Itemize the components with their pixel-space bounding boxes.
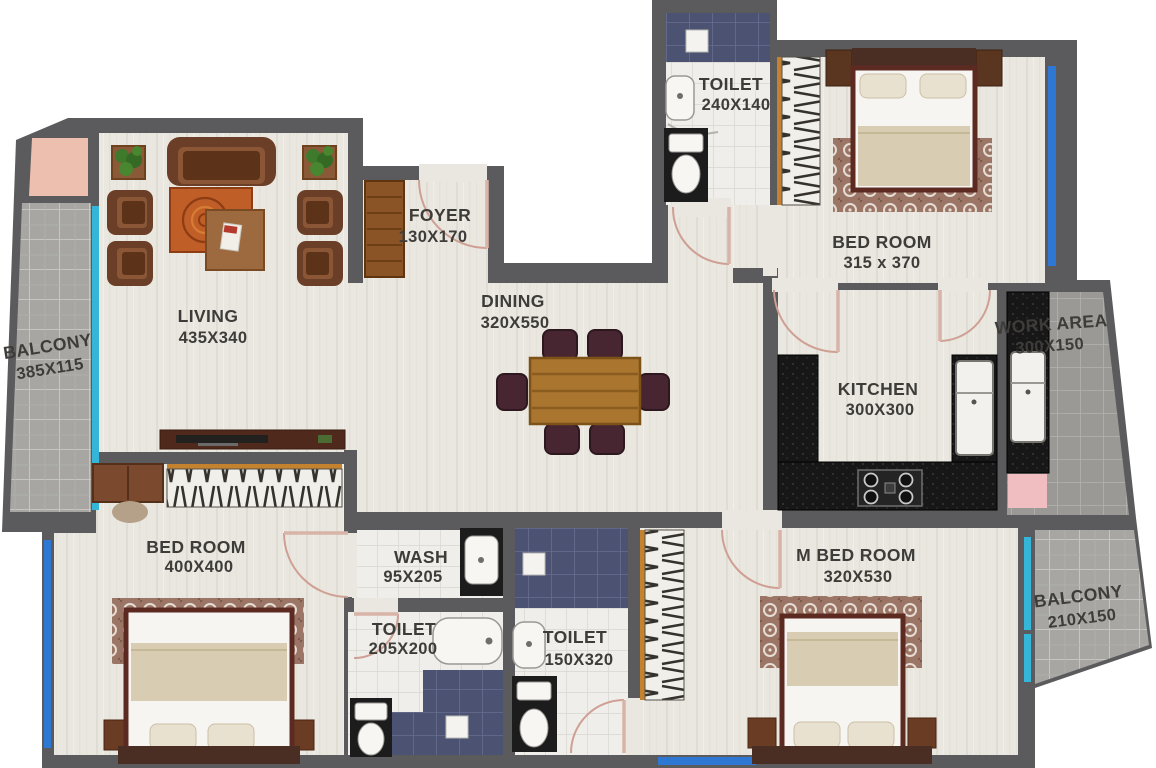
armchair-icon (297, 190, 343, 235)
wall-bedroom-left-east (344, 450, 357, 536)
room-name: TOILET (543, 627, 607, 647)
room-dims: 320X530 (824, 568, 893, 586)
stool-icon (112, 501, 148, 523)
floor-plan-image: BALCONY 385X115 LIVING 435X340 FOYER 130… (0, 0, 1156, 768)
toilet-small-drain (446, 716, 468, 738)
toilet-mid-drain (523, 553, 545, 575)
toilet-top-drain (686, 30, 708, 52)
room-dims: 205X200 (369, 640, 438, 658)
room-dims: 150X320 (545, 651, 614, 669)
window-bedroom-left (44, 540, 51, 748)
opening-m-bedroom (722, 510, 782, 530)
room-name: KITCHEN (838, 379, 919, 399)
opening-kitchen-left (772, 278, 838, 292)
room-name: BED ROOM (146, 537, 245, 557)
label-toilet-small: TOILET 205X200 (369, 619, 438, 658)
armchair-icon (107, 241, 153, 286)
washer-icon (1011, 352, 1045, 442)
bed-icon (852, 48, 976, 190)
sofa-icon (167, 137, 276, 186)
stove-icon (858, 470, 922, 506)
wc-icon (350, 698, 392, 757)
fridge-icon (956, 361, 993, 455)
room-name: DINING (481, 291, 545, 311)
armchair-icon (107, 190, 153, 235)
bedroom-top-furniture (777, 48, 1002, 212)
window-balcony-right-1 (1024, 537, 1031, 630)
window-balcony-right-2 (1024, 634, 1031, 682)
nightstand-icon (826, 50, 852, 86)
opening-wash-toilet (354, 598, 398, 614)
wash-fixtures (460, 528, 503, 596)
room-dims: 130X170 (399, 228, 468, 246)
room-dims: 400X400 (165, 558, 234, 576)
coffee-table-icon (206, 210, 264, 270)
nightstand-icon (976, 50, 1002, 86)
opening-kitchen-right (938, 278, 988, 292)
wardrobe-icon (167, 464, 342, 507)
room-dims: 240X140 (702, 96, 771, 114)
room-name: WASH (394, 547, 448, 567)
nightstand-icon (748, 718, 776, 748)
plant-icon (303, 146, 336, 179)
work-area-pink-pad (1008, 474, 1047, 508)
label-wash: WASH 95X205 (383, 547, 448, 586)
room-dims: 300X300 (846, 401, 915, 419)
bath-basin-icon (433, 618, 502, 664)
opening-bedroom-left (344, 533, 357, 597)
tv-console-icon (160, 430, 345, 449)
nightstand-icon (908, 718, 936, 748)
room-name: TOILET (372, 619, 436, 639)
room-name: LIVING (178, 306, 239, 326)
wardrobe-icon (777, 57, 820, 205)
wc-icon (512, 676, 557, 752)
room-dims: 95X205 (383, 568, 442, 586)
window-bedroom-top (1048, 66, 1056, 266)
wardrobe-icon (640, 530, 684, 700)
room-dims: 320X550 (481, 314, 550, 332)
room-name: M BED ROOM (796, 545, 916, 565)
floor-plan-svg: BALCONY 385X115 LIVING 435X340 FOYER 130… (0, 0, 1156, 768)
room-name: BED ROOM (832, 232, 931, 252)
window-m-bedroom-bottom (658, 757, 756, 765)
opening-bedroom-top (763, 205, 777, 276)
washbasin-icon (513, 622, 545, 668)
armchair-icon (297, 241, 343, 286)
opening-toilet-mid (626, 698, 642, 755)
room-name: TOILET (699, 74, 763, 94)
room-name: FOYER (409, 205, 471, 225)
terrace-pink-pad (29, 138, 88, 196)
opening-entry (419, 164, 487, 182)
bed-icon (118, 610, 300, 764)
plant-icon (112, 146, 145, 179)
room-dims: 315 x 370 (843, 254, 920, 272)
wc-icon (664, 128, 708, 202)
toilet-top-shower-tiles (666, 13, 770, 62)
room-dims: 435X340 (179, 329, 248, 347)
